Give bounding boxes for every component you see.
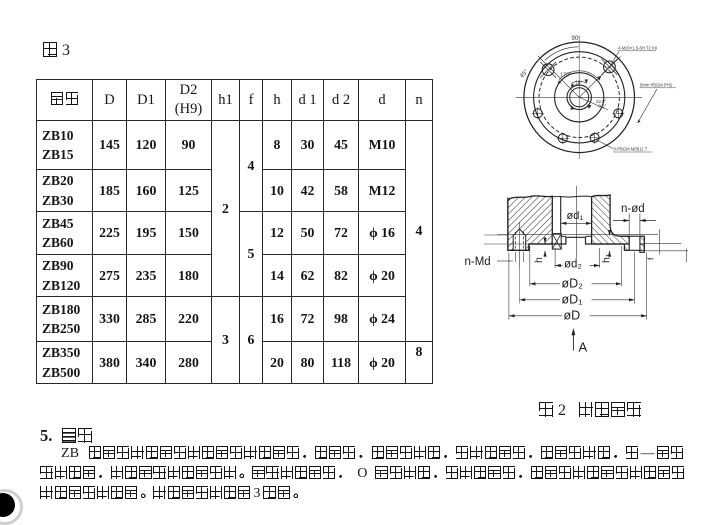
svg-text:90°: 90° — [572, 36, 582, 42]
svg-text:8-PBGM M(0)11 T: 8-PBGM M(0)11 T — [614, 147, 648, 152]
svg-text:h₁: h₁ — [601, 253, 613, 263]
svg-text:øD₂: øD₂ — [562, 277, 584, 291]
svg-text:n-Md: n-Md — [465, 256, 491, 268]
svg-text:h: h — [533, 257, 545, 263]
svg-text:-0.5°: -0.5° — [597, 104, 607, 109]
svg-text:A: A — [579, 340, 588, 355]
svg-text:45°: 45° — [519, 69, 530, 80]
svg-text:øD₁: øD₁ — [562, 293, 583, 307]
svg-text:øD: øD — [564, 309, 581, 323]
svg-text:n-ød: n-ød — [621, 203, 645, 215]
svg-text:4-M20×1.5-6H T2 K0: 4-M20×1.5-6H T2 K0 — [618, 46, 658, 51]
svg-text:ød₁: ød₁ — [567, 210, 584, 222]
svg-text:170°: 170° — [560, 73, 571, 79]
svg-text:18°: 18° — [575, 81, 583, 87]
svg-text:5mm PBGM PH2: 5mm PBGM PH2 — [640, 83, 673, 88]
svg-text:ød₂: ød₂ — [564, 258, 582, 270]
